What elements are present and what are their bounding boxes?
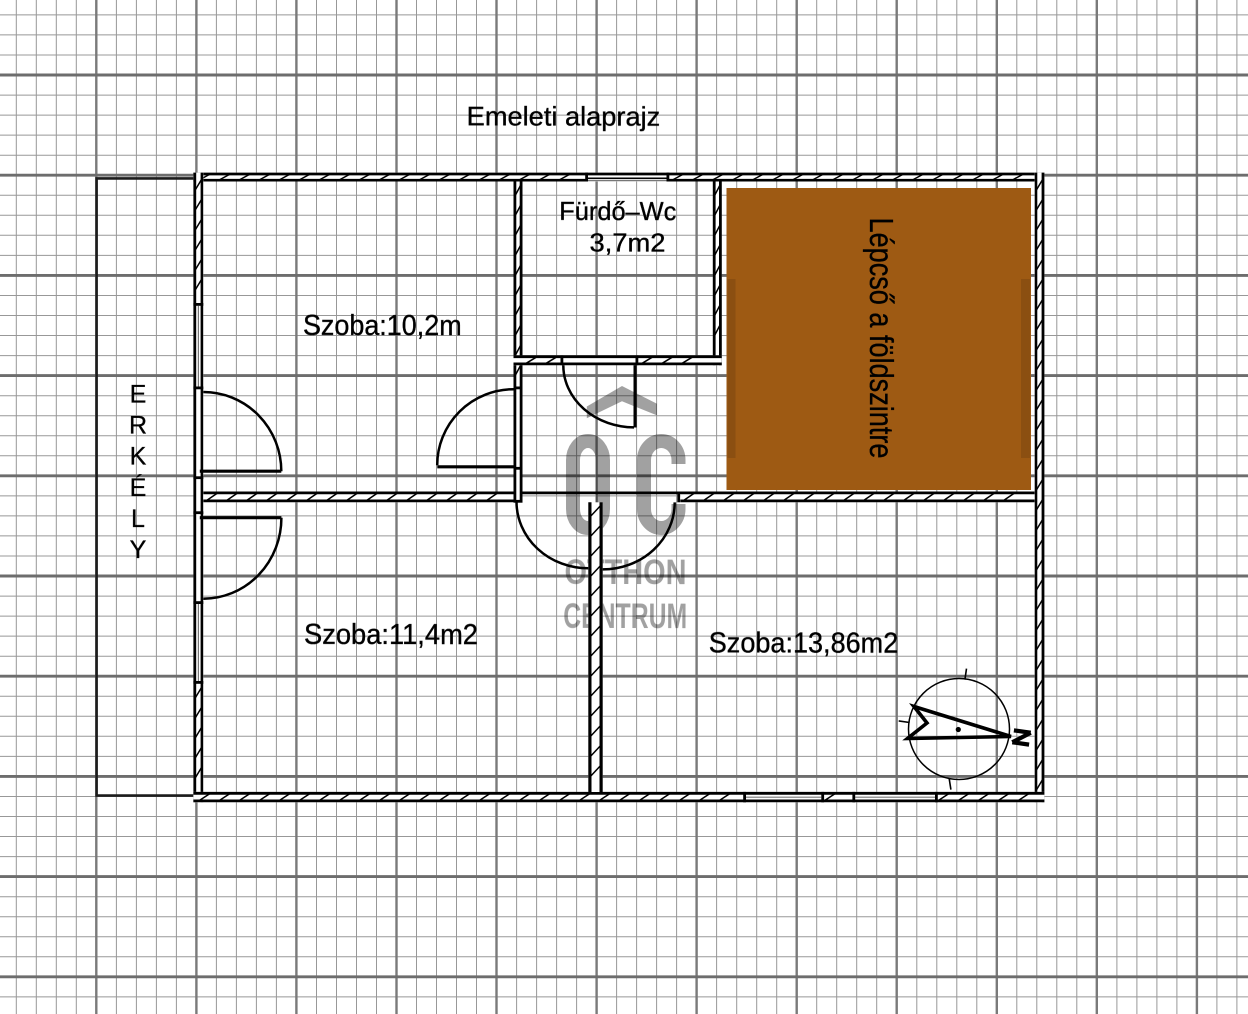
svg-text:3,7m2: 3,7m2 [589, 227, 665, 257]
svg-text:Szoba:13,86m2: Szoba:13,86m2 [709, 628, 899, 660]
svg-text:Szoba:11,4m2: Szoba:11,4m2 [304, 619, 478, 651]
svg-text:Emeleti alaprajz: Emeleti alaprajz [467, 101, 661, 131]
svg-text:Y: Y [130, 536, 147, 564]
svg-text:É: É [130, 473, 147, 502]
svg-text:K: K [130, 443, 147, 471]
svg-text:E: E [130, 380, 147, 408]
svg-text:Fürdő–Wc: Fürdő–Wc [559, 196, 676, 226]
svg-text:OTTHON: OTTHON [564, 553, 686, 592]
svg-text:R: R [129, 412, 147, 440]
svg-text:CENTRUM: CENTRUM [563, 597, 687, 636]
svg-text:Szoba:10,2m: Szoba:10,2m [303, 310, 462, 342]
svg-text:Lépcső a földszintre: Lépcső a földszintre [863, 218, 900, 459]
svg-text:L: L [131, 505, 145, 533]
